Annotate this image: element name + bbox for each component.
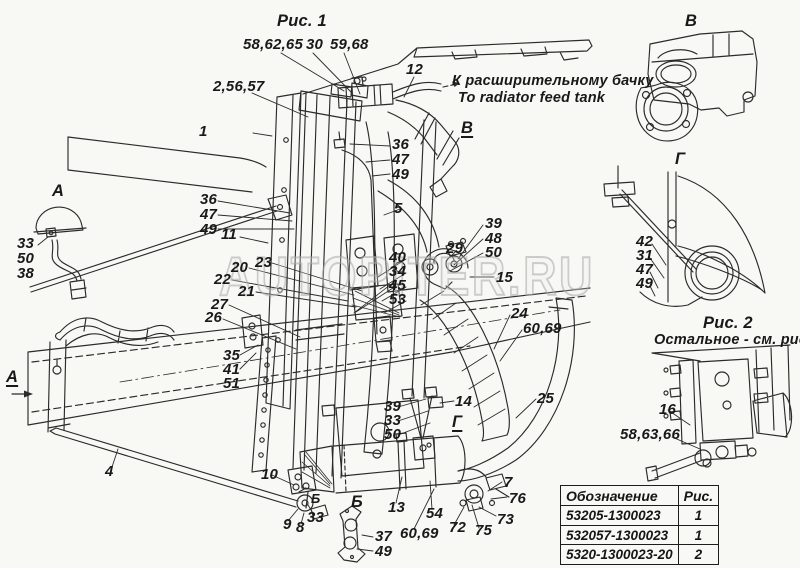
part-number-label: 72 <box>449 520 466 536</box>
part-number-label: 49 <box>636 276 653 292</box>
leader-lines <box>38 53 700 551</box>
designation-cell: 532057-1300023 <box>561 525 679 545</box>
designation-cell: 5320-1300023-20 <box>561 545 679 565</box>
part-number-label: 16 <box>659 402 676 418</box>
part-number-label: 14 <box>455 394 472 410</box>
part-number-label: 59,68 <box>330 37 369 53</box>
part-number-label: 60,69 <box>400 526 439 542</box>
table-header-row: Обозначение Рис. <box>561 486 719 506</box>
part-number-label: 53 <box>389 292 406 308</box>
part-number-label: 33 <box>307 510 324 526</box>
part-number-label: 38 <box>17 266 34 282</box>
part-number-label: 26 <box>205 310 222 326</box>
note-expansion-tank-en: To radiator feed tank <box>458 91 605 106</box>
part-number-label: 4 <box>105 464 114 480</box>
reference-table: Обозначение Рис. 53205-1300023 1 532057-… <box>560 485 719 565</box>
part-number-label: 21 <box>238 284 255 300</box>
fig-cell: 2 <box>678 545 719 565</box>
part-number-label: 29 <box>446 241 463 257</box>
table-row: 532057-1300023 1 <box>561 525 719 545</box>
part-number-label: 50 <box>384 427 401 443</box>
part-number-label: 9 <box>283 517 292 533</box>
view-g-drawing <box>604 166 765 306</box>
part-number-label: 5 <box>394 201 403 217</box>
part-number-label: 75 <box>475 523 492 539</box>
part-number-label: 7 <box>504 475 513 491</box>
part-number-label: 49 <box>200 222 217 238</box>
view-label-a: А <box>52 183 64 200</box>
part-number-label: 49 <box>375 544 392 560</box>
designation-cell: 53205-1300023 <box>561 506 679 526</box>
part-number-label: 50 <box>485 245 502 261</box>
part-number-label: 76 <box>509 491 526 507</box>
view-a-drawing <box>34 207 86 299</box>
part-number-label: 58,63,66 <box>620 427 680 443</box>
part-number-label: 20 <box>231 260 248 276</box>
section-label-b: Б <box>311 492 320 506</box>
fig1-title: Рис. 1 <box>277 13 327 30</box>
part-number-label: 51 <box>223 376 240 392</box>
part-number-label: 60,69 <box>523 321 562 337</box>
view-label-b: Б <box>351 494 363 511</box>
part-number-label: 73 <box>497 512 514 528</box>
view-b-bracket-drawing <box>338 506 365 562</box>
fig2-title: Рис. 2 <box>703 315 753 332</box>
section-label-v: В <box>461 120 473 137</box>
part-number-label: 58,62,65 <box>243 37 303 53</box>
part-number-label: 22 <box>214 272 231 288</box>
view-label-v: В <box>685 13 697 30</box>
pipes-hoses <box>300 82 574 512</box>
part-number-label: 1 <box>199 124 208 140</box>
fig-cell: 1 <box>678 506 719 526</box>
table-header-designation: Обозначение <box>561 486 679 506</box>
note-expansion-tank-ru: К расширительному бачку <box>452 74 654 89</box>
part-number-label: 2,56,57 <box>213 79 264 95</box>
part-number-label: 10 <box>261 467 278 483</box>
table-header-fig: Рис. <box>678 486 719 506</box>
fig2-note: Остальное - см. рис.1 <box>654 333 800 348</box>
part-number-label: 12 <box>406 62 423 78</box>
view-label-g: Г <box>675 151 685 168</box>
part-number-label: 25 <box>537 391 554 407</box>
table-row: 53205-1300023 1 <box>561 506 719 526</box>
part-number-label: 54 <box>426 506 443 522</box>
section-label-a: А <box>6 369 18 386</box>
tie-rod <box>50 428 328 519</box>
part-number-label: 49 <box>392 167 409 183</box>
part-number-label: 30 <box>306 37 323 53</box>
part-number-label: 8 <box>296 520 305 536</box>
table-row: 5320-1300023-20 2 <box>561 545 719 565</box>
section-label-g: Г <box>452 414 462 431</box>
part-number-label: 11 <box>221 227 237 243</box>
stage: AUTOPITER.RU Обозначение Рис. 53205-1300… <box>0 0 800 568</box>
part-number-label: 23 <box>255 255 272 271</box>
fig-cell: 1 <box>678 525 719 545</box>
view-b-drawing <box>636 31 757 141</box>
part-number-label: 13 <box>388 500 405 516</box>
part-number-label: 15 <box>496 270 513 286</box>
